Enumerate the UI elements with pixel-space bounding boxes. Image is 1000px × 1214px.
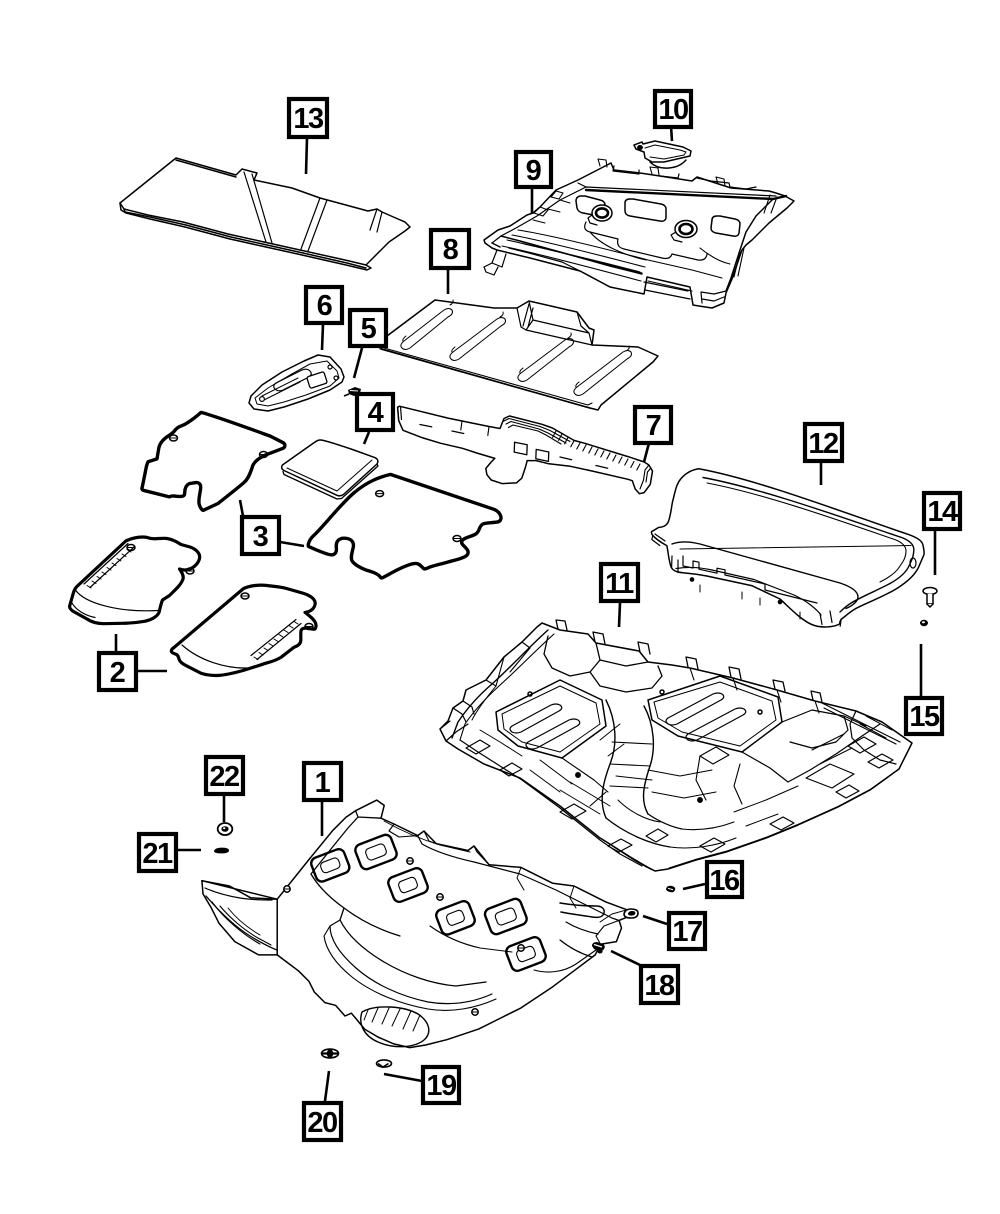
svg-text:16: 16 — [709, 865, 740, 897]
svg-text:8: 8 — [443, 234, 459, 266]
svg-text:4: 4 — [368, 397, 384, 429]
svg-text:20: 20 — [307, 1107, 337, 1139]
svg-text:1: 1 — [315, 767, 331, 799]
svg-text:19: 19 — [426, 1070, 457, 1102]
svg-text:14: 14 — [927, 496, 958, 528]
svg-text:17: 17 — [672, 916, 702, 948]
svg-text:18: 18 — [644, 970, 675, 1002]
svg-text:21: 21 — [142, 838, 173, 870]
svg-text:15: 15 — [909, 701, 940, 733]
svg-text:11: 11 — [605, 568, 634, 600]
svg-text:10: 10 — [658, 94, 688, 126]
svg-text:9: 9 — [526, 155, 542, 187]
svg-text:22: 22 — [209, 761, 239, 793]
svg-text:6: 6 — [317, 290, 333, 322]
svg-text:5: 5 — [361, 313, 377, 345]
svg-text:3: 3 — [253, 521, 269, 553]
svg-text:12: 12 — [808, 428, 838, 460]
svg-text:13: 13 — [293, 103, 324, 135]
svg-text:2: 2 — [110, 657, 125, 689]
svg-text:7: 7 — [646, 410, 661, 442]
